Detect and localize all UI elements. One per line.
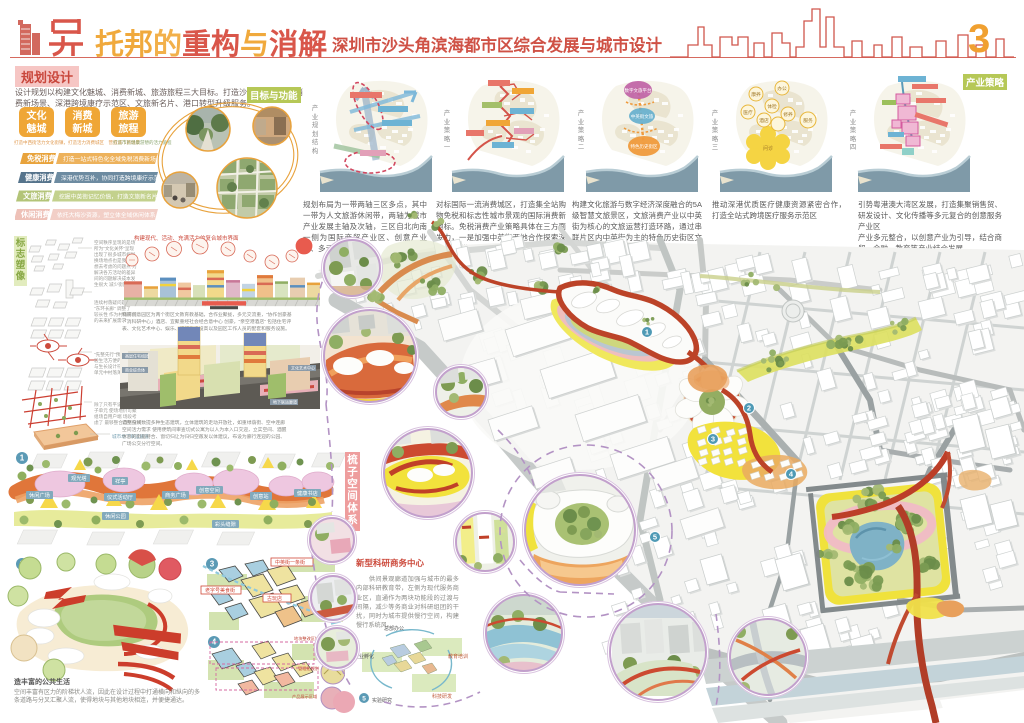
svg-text:3: 3 (711, 435, 715, 444)
svg-text:2: 2 (747, 404, 751, 413)
svg-text:1: 1 (645, 328, 649, 337)
svg-text:5: 5 (653, 533, 657, 542)
